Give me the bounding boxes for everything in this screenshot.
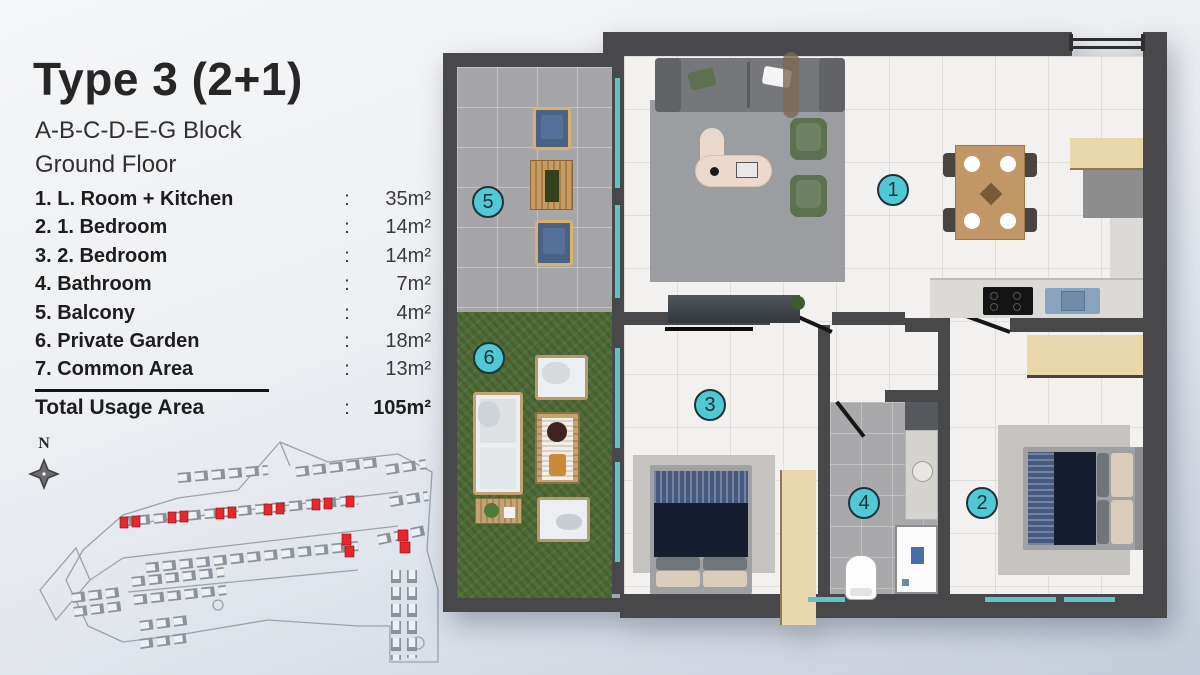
page-title: Type 3 (2+1) [33,52,303,106]
floor-subtitle: Ground Floor [35,151,176,179]
bed-pillow [1097,453,1109,497]
room-area: 14m² [355,216,431,239]
wall-garden-bottom [443,598,630,612]
separator: : [339,189,355,211]
bedroom1-desk [1027,335,1143,378]
bed-duvet [654,503,748,557]
garden-pillow [542,362,570,384]
tv-console [668,295,800,323]
garden-chair [535,355,588,400]
garden-sofa [473,392,523,495]
window-mullion [1056,595,1064,604]
room-area: 4m² [355,302,431,325]
entrance-door-jamb [1069,34,1073,51]
wall-kitchen [905,318,950,332]
kitchen-sink [1045,288,1100,314]
desk [695,155,772,187]
tv [665,327,753,331]
toilet [845,555,877,600]
bed-pillow [656,557,700,570]
total-divider [35,389,269,392]
shower-fixture [911,547,924,564]
wall-kitchen [1010,318,1143,332]
info-panel: Type 3 (2+1) A-B-C-D-E-G Block Ground Fl… [33,0,463,675]
room-label: 2. 1. Bedroom [35,216,339,239]
bed-throw [1028,452,1054,545]
plant [484,503,499,518]
garden-window [615,348,620,448]
block-subtitle: A-B-C-D-E-G Block [35,117,242,145]
separator: : [339,274,355,296]
fridge-cabinet [1070,138,1143,170]
balcony-chair [533,107,571,150]
entrance-door-jamb [1141,34,1145,51]
room-marker-bedroom1: 2 [966,487,998,519]
bed-pillow [1111,500,1133,544]
highlighted-units [120,496,410,557]
room-area: 35m² [355,188,431,211]
floorplan-page: Type 3 (2+1) A-B-C-D-E-G Block Ground Fl… [0,0,1200,675]
room-area: 7m² [355,273,431,296]
sofa-pillow-green [687,67,717,91]
headboard [1135,447,1143,550]
throw-blanket [783,52,799,118]
building-rows [72,462,428,660]
bed-pillow [1097,500,1109,544]
room-marker-bathroom: 4 [848,487,880,519]
wall-hall [832,312,905,325]
table-centerpiece [980,183,1003,206]
kitchen-counter [930,278,1143,318]
wall-balcony-top [443,53,620,67]
total-row: Total Usage Area : 105m² [35,396,431,420]
room-marker-balcony: 5 [472,186,504,218]
balcony-window [615,205,620,298]
armchair-green [790,175,827,217]
room-row-bedroom2: 3. 2. Bedroom : 14m² [35,245,431,268]
room-label: 6. Private Garden [35,330,339,353]
bed-bedroom1 [1023,447,1143,550]
shower [895,525,938,594]
garden-window [615,462,620,562]
cooktop [983,287,1033,315]
room-marker-living: 1 [877,174,909,206]
total-area: 105m² [355,397,431,420]
room-row-bathroom: 4. Bathroom : 7m² [35,273,431,296]
room-row-balcony: 5. Balcony : 4m² [35,302,431,325]
wall-garden-left [443,312,457,598]
book [504,507,515,518]
garden-pillow [478,401,500,427]
room-row-bedroom1: 2. 1. Bedroom : 14m² [35,216,431,239]
plant [791,296,805,310]
bedroom-window [985,597,1115,602]
room-label: 1. L. Room + Kitchen [35,188,339,211]
drain [902,579,909,586]
separator: : [339,331,355,353]
bed-pillow [703,571,747,587]
fruit-tray [549,454,566,476]
separator: : [339,303,355,325]
bath-cabinet [905,402,938,430]
total-label: Total Usage Area [35,396,339,420]
wall-bath-bedroom [938,332,950,594]
room-label: 5. Balcony [35,302,339,325]
bed-bedroom2 [650,465,752,594]
room-label: 4. Bathroom [35,273,339,296]
separator: : [339,398,355,420]
balcony-chair [535,220,573,266]
bath-vanity [905,430,938,520]
separator: : [339,217,355,239]
entrance-door-line [1072,38,1143,41]
balcony-table [530,160,573,210]
floor-plan: 1 2 3 4 5 6 [443,30,1167,622]
basin [912,461,933,482]
entrance-door-line [1072,46,1143,49]
separator: : [339,359,355,381]
room-label: 3. 2. Bedroom [35,245,339,268]
wall-right [1143,32,1167,618]
bowl [547,422,567,442]
balcony-window [615,78,620,188]
separator: : [339,246,355,268]
planter [545,170,559,202]
room-marker-bedroom2: 3 [694,389,726,421]
bed-throw [654,471,748,503]
bed-pillow [1111,453,1133,497]
bed-duvet [1054,452,1096,545]
room-label: 7. Common Area [35,358,339,381]
room-row-garden: 6. Private Garden : 18m² [35,330,431,353]
wall-bedroom-bath [818,325,830,594]
garden-side-table [475,498,522,524]
room-row-common: 7. Common Area : 13m² [35,358,431,381]
site-plan-map [28,430,446,670]
room-area: 13m² [355,358,431,381]
room-area: 14m² [355,245,431,268]
wall-balcony-left [443,53,457,312]
bathroom-window [808,597,845,602]
garden-pillow [556,514,582,530]
armchair-green [790,118,827,160]
garden-coffee-table [535,412,580,484]
kitchen-tall-unit [1083,170,1143,218]
kitchen-counter-side [1110,218,1143,278]
laptop [736,162,758,178]
wall-top [603,32,1072,56]
sofa [655,58,845,112]
dining-table [955,145,1025,240]
bed-pillow [656,571,700,587]
room-area: 18m² [355,330,431,353]
garden-chair [537,497,590,542]
bed-pillow [703,557,747,570]
room-marker-garden: 6 [473,342,505,374]
room-row-living: 1. L. Room + Kitchen : 35m² [35,188,431,211]
